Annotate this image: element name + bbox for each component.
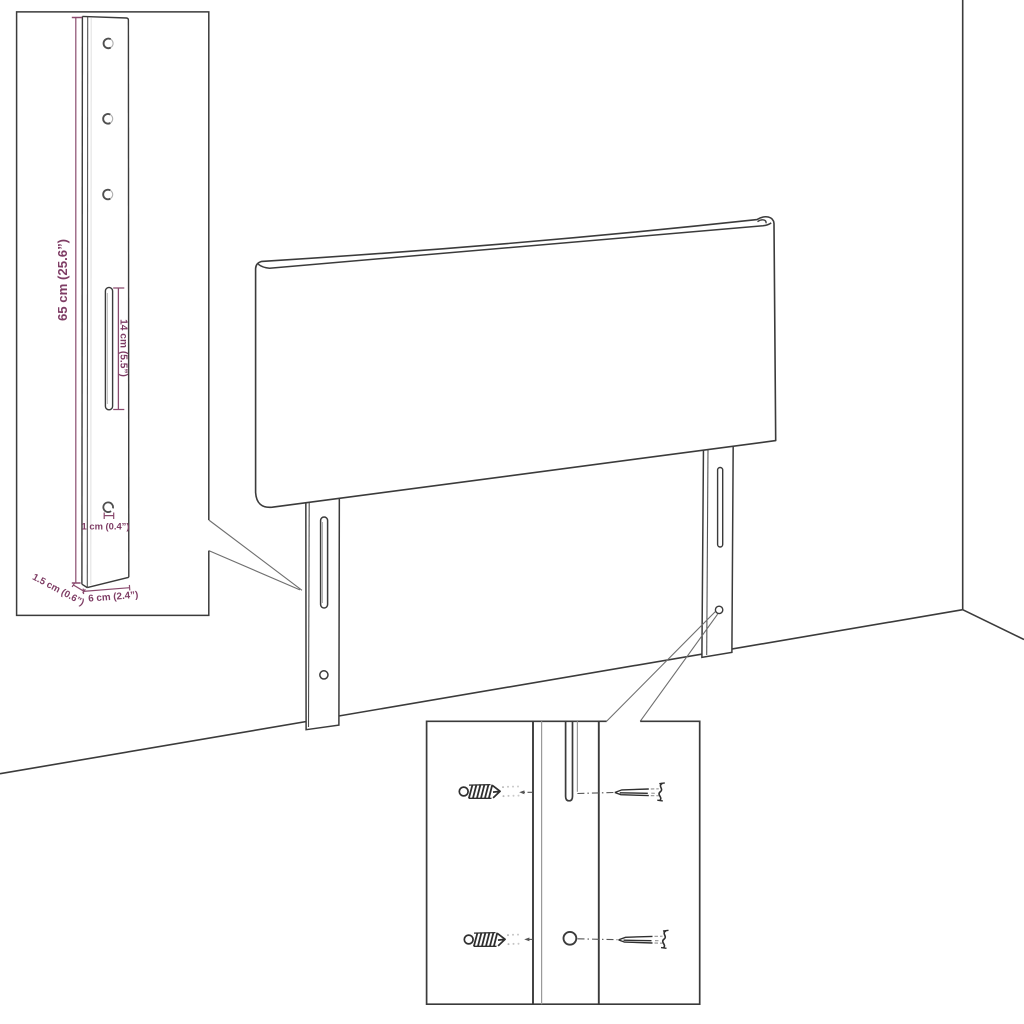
svg-text:14 cm (5.5”): 14 cm (5.5”) [118, 319, 129, 377]
svg-text:65 cm (25.6”): 65 cm (25.6”) [55, 239, 70, 321]
svg-text:1 cm (0.4”): 1 cm (0.4”) [82, 520, 130, 531]
